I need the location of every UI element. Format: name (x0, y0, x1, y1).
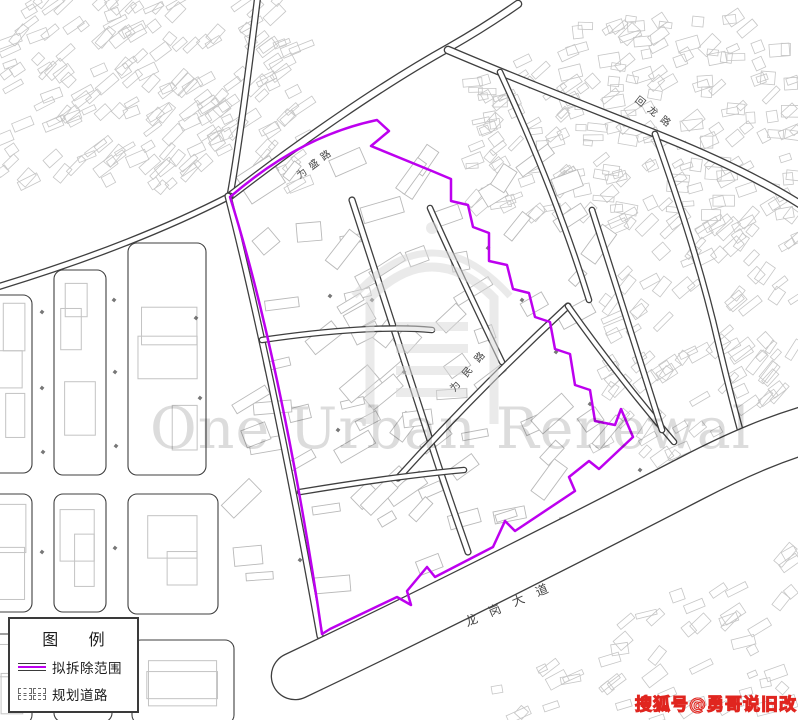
legend-box: 图例 拟拆除范围 规划道路 (8, 617, 139, 713)
road-network-layer (0, 0, 798, 676)
legend-title: 图例 (18, 626, 159, 650)
planning-map-page: One Urban Renewal 为盛路 回龙路 为民路 龙岗大道 图例 拟拆… (0, 0, 798, 720)
planned-road-icon (18, 688, 46, 700)
legend-item-label: 规划道路 (52, 684, 108, 704)
legend-item-label: 拟拆除范围 (52, 657, 122, 677)
legend-item-planned-road: 规划道路 (18, 684, 129, 704)
sohu-watermark-badge: 搜狐号@勇哥说旧改 (635, 690, 797, 715)
demolition-boundary-line-icon (18, 663, 46, 671)
legend-item-demolition: 拟拆除范围 (18, 657, 129, 677)
map-canvas (0, 0, 798, 720)
